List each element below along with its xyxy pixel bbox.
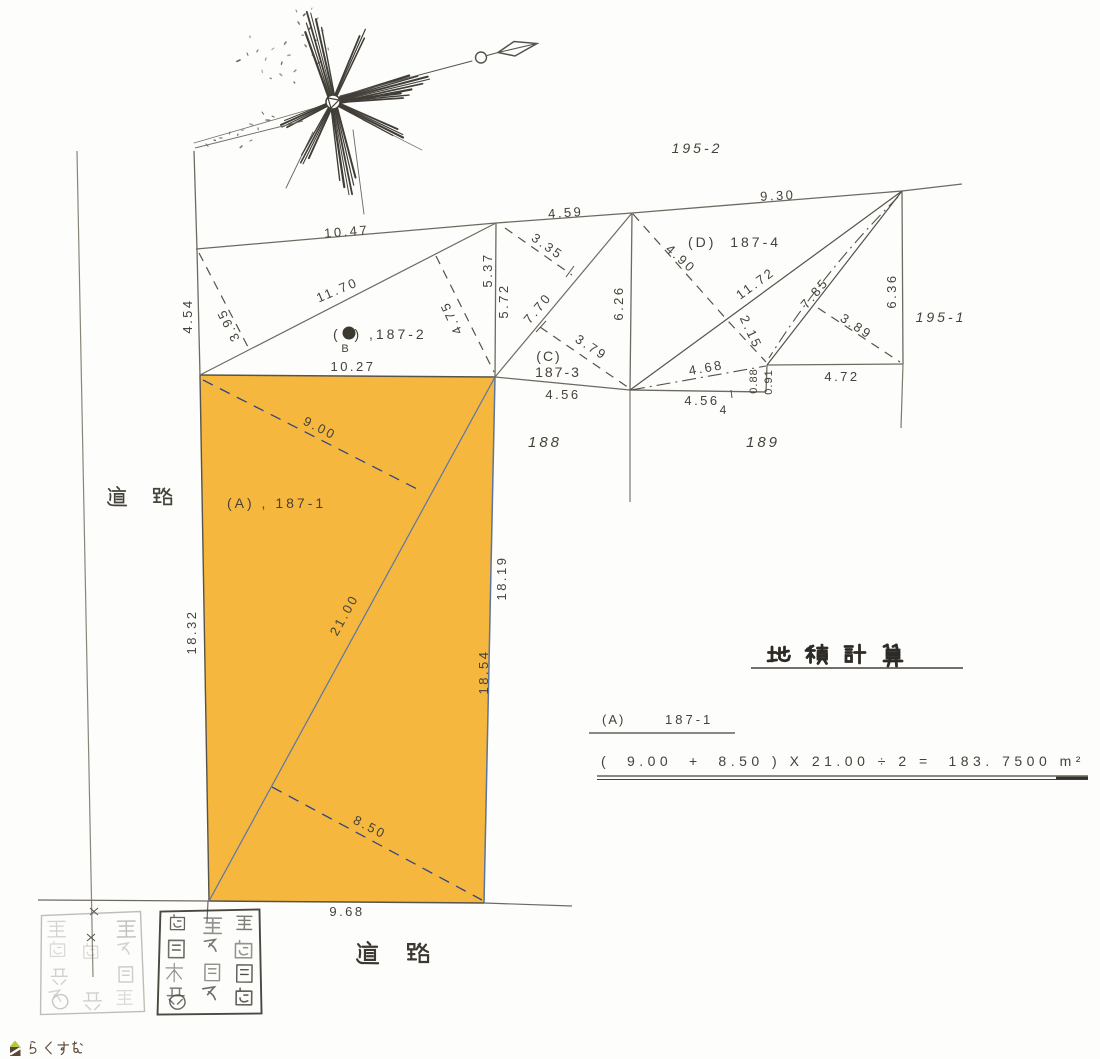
svg-text:4.54: 4.54 <box>180 298 195 333</box>
svg-text:18.19: 18.19 <box>494 555 509 600</box>
svg-text:6.36: 6.36 <box>884 273 899 308</box>
svg-text:5.72: 5.72 <box>496 283 511 318</box>
svg-text:4: 4 <box>720 403 727 417</box>
svg-text:4.72: 4.72 <box>824 369 859 384</box>
svg-text:4.56: 4.56 <box>684 393 719 408</box>
svg-text:18.54: 18.54 <box>476 649 491 694</box>
svg-text:187-3: 187-3 <box>535 364 581 380</box>
svg-text:4.56: 4.56 <box>545 387 580 402</box>
svg-text:B: B <box>341 343 348 355</box>
svg-text:9.30: 9.30 <box>760 187 796 204</box>
svg-text:18.32: 18.32 <box>184 609 199 654</box>
svg-text:(D) 187-4: (D) 187-4 <box>688 234 781 250</box>
svg-text:(A) , 187-1: (A) , 187-1 <box>227 495 326 511</box>
svg-text:6.26: 6.26 <box>611 285 626 320</box>
svg-text:( 9.00 + 8.50 ) X 21.00 ÷ 2: ( 9.00 + 8.50 ) X 21.00 ÷ 2 = 183. 7500 … <box>601 753 1085 769</box>
svg-text:(C): (C) <box>536 348 561 364</box>
svg-text:0.91: 0.91 <box>763 369 775 394</box>
svg-text:195-2: 195-2 <box>672 140 723 156</box>
svg-text:9.68: 9.68 <box>329 904 364 919</box>
svg-text:0.88: 0.88 <box>748 368 760 393</box>
svg-text:188: 188 <box>528 434 562 451</box>
svg-text:(A): (A) <box>602 712 625 727</box>
svg-text:195-1: 195-1 <box>916 309 967 325</box>
svg-text:4.59: 4.59 <box>548 204 584 221</box>
svg-text:5.37: 5.37 <box>480 252 495 287</box>
svg-text:187-1: 187-1 <box>665 712 713 727</box>
svg-text:10.27: 10.27 <box>330 359 375 374</box>
svg-text:189: 189 <box>746 434 780 451</box>
